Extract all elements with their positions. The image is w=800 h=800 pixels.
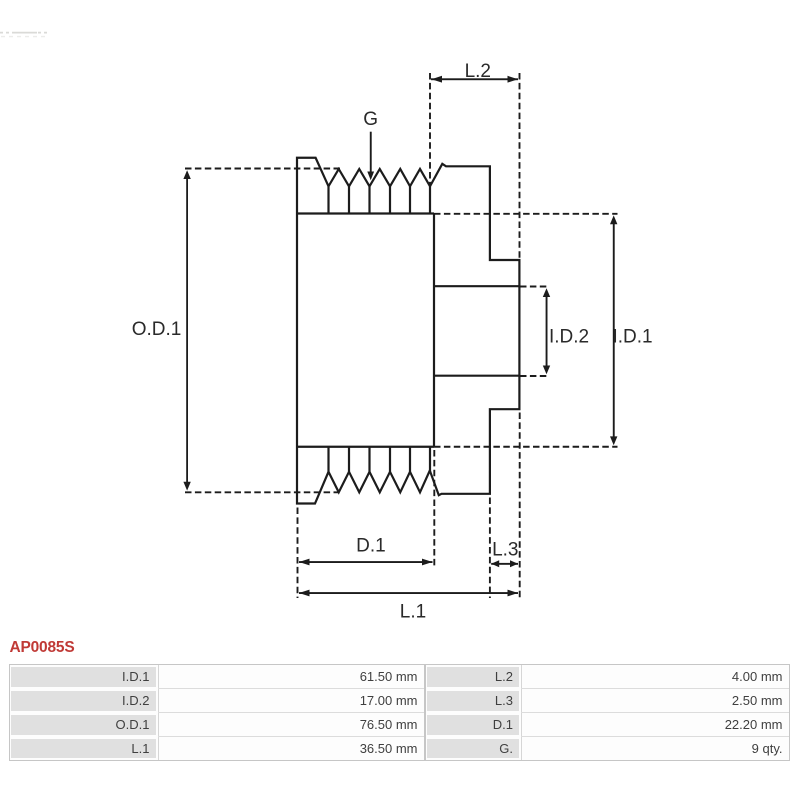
svg-text:L.1: L.1 bbox=[400, 602, 426, 623]
svg-text:L.2: L.2 bbox=[465, 61, 491, 82]
svg-text:G: G bbox=[363, 109, 378, 130]
svg-text:I.D.1: I.D.1 bbox=[612, 327, 652, 348]
svg-text:L.3: L.3 bbox=[492, 540, 518, 561]
svg-text:I.D.2: I.D.2 bbox=[549, 327, 589, 348]
svg-text:O.D.1: O.D.1 bbox=[132, 319, 182, 340]
svg-text:D.1: D.1 bbox=[356, 536, 386, 557]
